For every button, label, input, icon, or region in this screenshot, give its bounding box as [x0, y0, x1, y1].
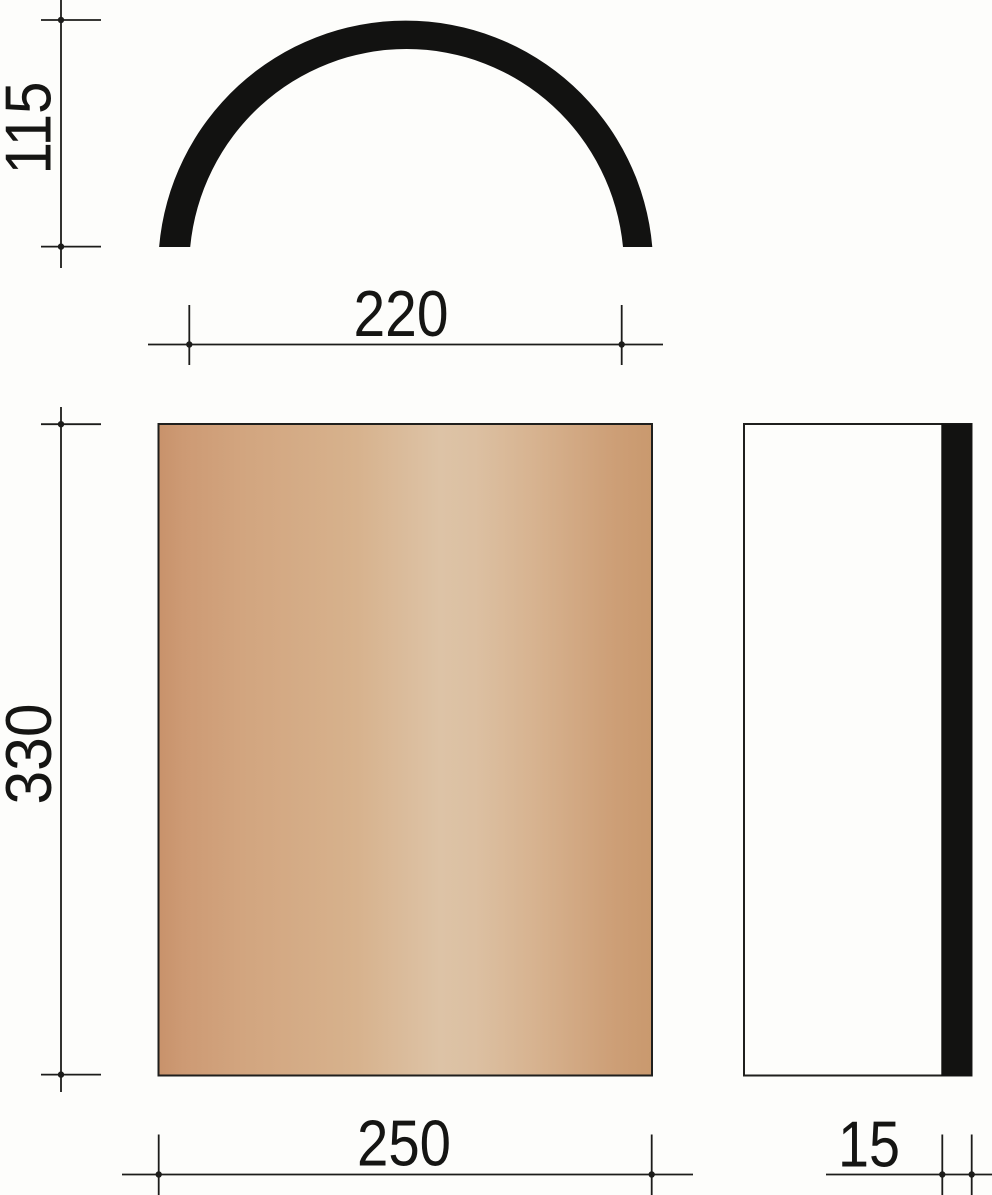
svg-text:115: 115: [0, 82, 65, 175]
svg-text:15: 15: [838, 1108, 900, 1181]
svg-text:250: 250: [357, 1107, 451, 1180]
svg-text:330: 330: [0, 704, 65, 805]
svg-text:220: 220: [354, 277, 449, 350]
